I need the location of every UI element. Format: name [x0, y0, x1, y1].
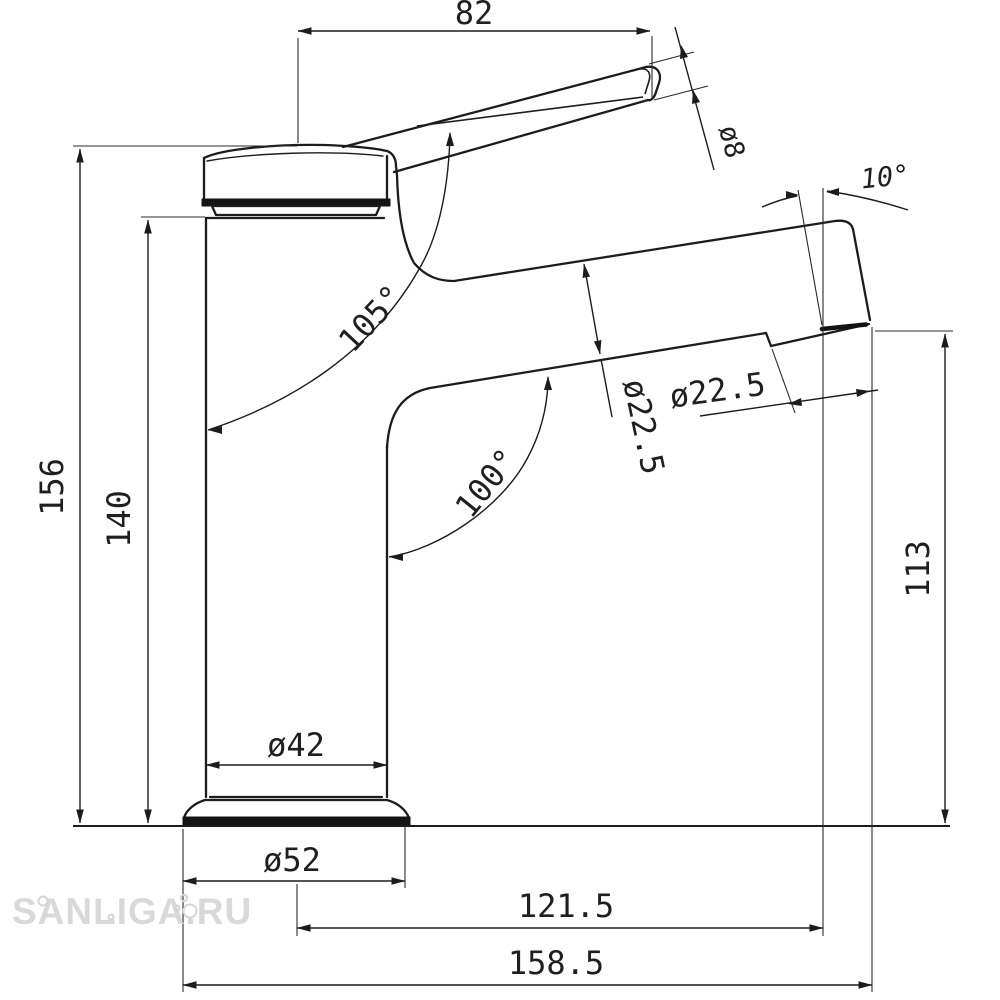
watermark: SANLIGA.RU	[12, 891, 252, 932]
cap-dome-rim	[207, 153, 383, 161]
technical-drawing-canvas: 82 ø8 10° 105° 100° ø22.5 ø22.5 113 156 …	[0, 0, 1000, 1000]
label-spout-dia: ø22.5	[615, 376, 672, 478]
arrowhead-100-left	[389, 553, 403, 561]
handle-tip-inner	[640, 69, 650, 94]
label-base-dia: ø52	[263, 841, 321, 879]
arc-10deg-left	[762, 196, 797, 207]
arc-100deg	[389, 377, 548, 557]
label-handle-dia: ø8	[712, 122, 750, 161]
aerator-face	[822, 325, 866, 330]
label-handle-length: 82	[455, 0, 494, 32]
ext-o8-upper	[649, 52, 694, 64]
watermark-text: SANLIGA.RU	[12, 891, 252, 932]
arrowhead-aerator-right	[856, 389, 870, 397]
arc-105deg	[208, 133, 450, 430]
base-band	[183, 817, 410, 825]
cap-dome	[204, 145, 387, 158]
base-neck-lines	[205, 797, 387, 800]
label-total-reach: 158.5	[508, 944, 604, 982]
ext-10deg-slanted	[798, 190, 822, 325]
handle-top-edge	[343, 67, 646, 147]
ext-o8-lower	[654, 86, 708, 100]
label-spout-outlet-height: 113	[899, 540, 937, 598]
label-handle-angle: 105°	[331, 277, 411, 359]
label-spout-angle: 100°	[447, 441, 525, 525]
label-body-height: 140	[100, 490, 138, 548]
label-total-height: 156	[33, 458, 71, 516]
base-flare-left	[184, 800, 205, 818]
label-spout-tilt-angle: 10°	[859, 160, 911, 196]
arrowhead-o8-upper	[680, 45, 688, 59]
arrowhead-10-left	[786, 191, 799, 199]
dimline-spout-dia-tail	[601, 359, 612, 417]
faucet-drawing-svg: 82 ø8 10° 105° 100° ø22.5 ø22.5 113 156 …	[0, 0, 1000, 1000]
arrowhead-100-top	[544, 376, 552, 390]
base-flare-right	[387, 800, 409, 818]
handle-bottom-edge	[394, 100, 648, 172]
dimension-lines	[80, 27, 945, 985]
aerator-step	[766, 333, 771, 346]
label-spout-reach: 121.5	[518, 887, 614, 925]
faucet-outline	[73, 67, 950, 826]
dimline-spout-dia	[584, 264, 600, 354]
neck-ring	[212, 206, 380, 215]
arrowhead-105-top	[446, 132, 454, 146]
arrowhead-10-right	[826, 188, 839, 196]
arrowhead-o8-lower	[692, 90, 700, 104]
label-body-dia: ø42	[267, 726, 325, 764]
